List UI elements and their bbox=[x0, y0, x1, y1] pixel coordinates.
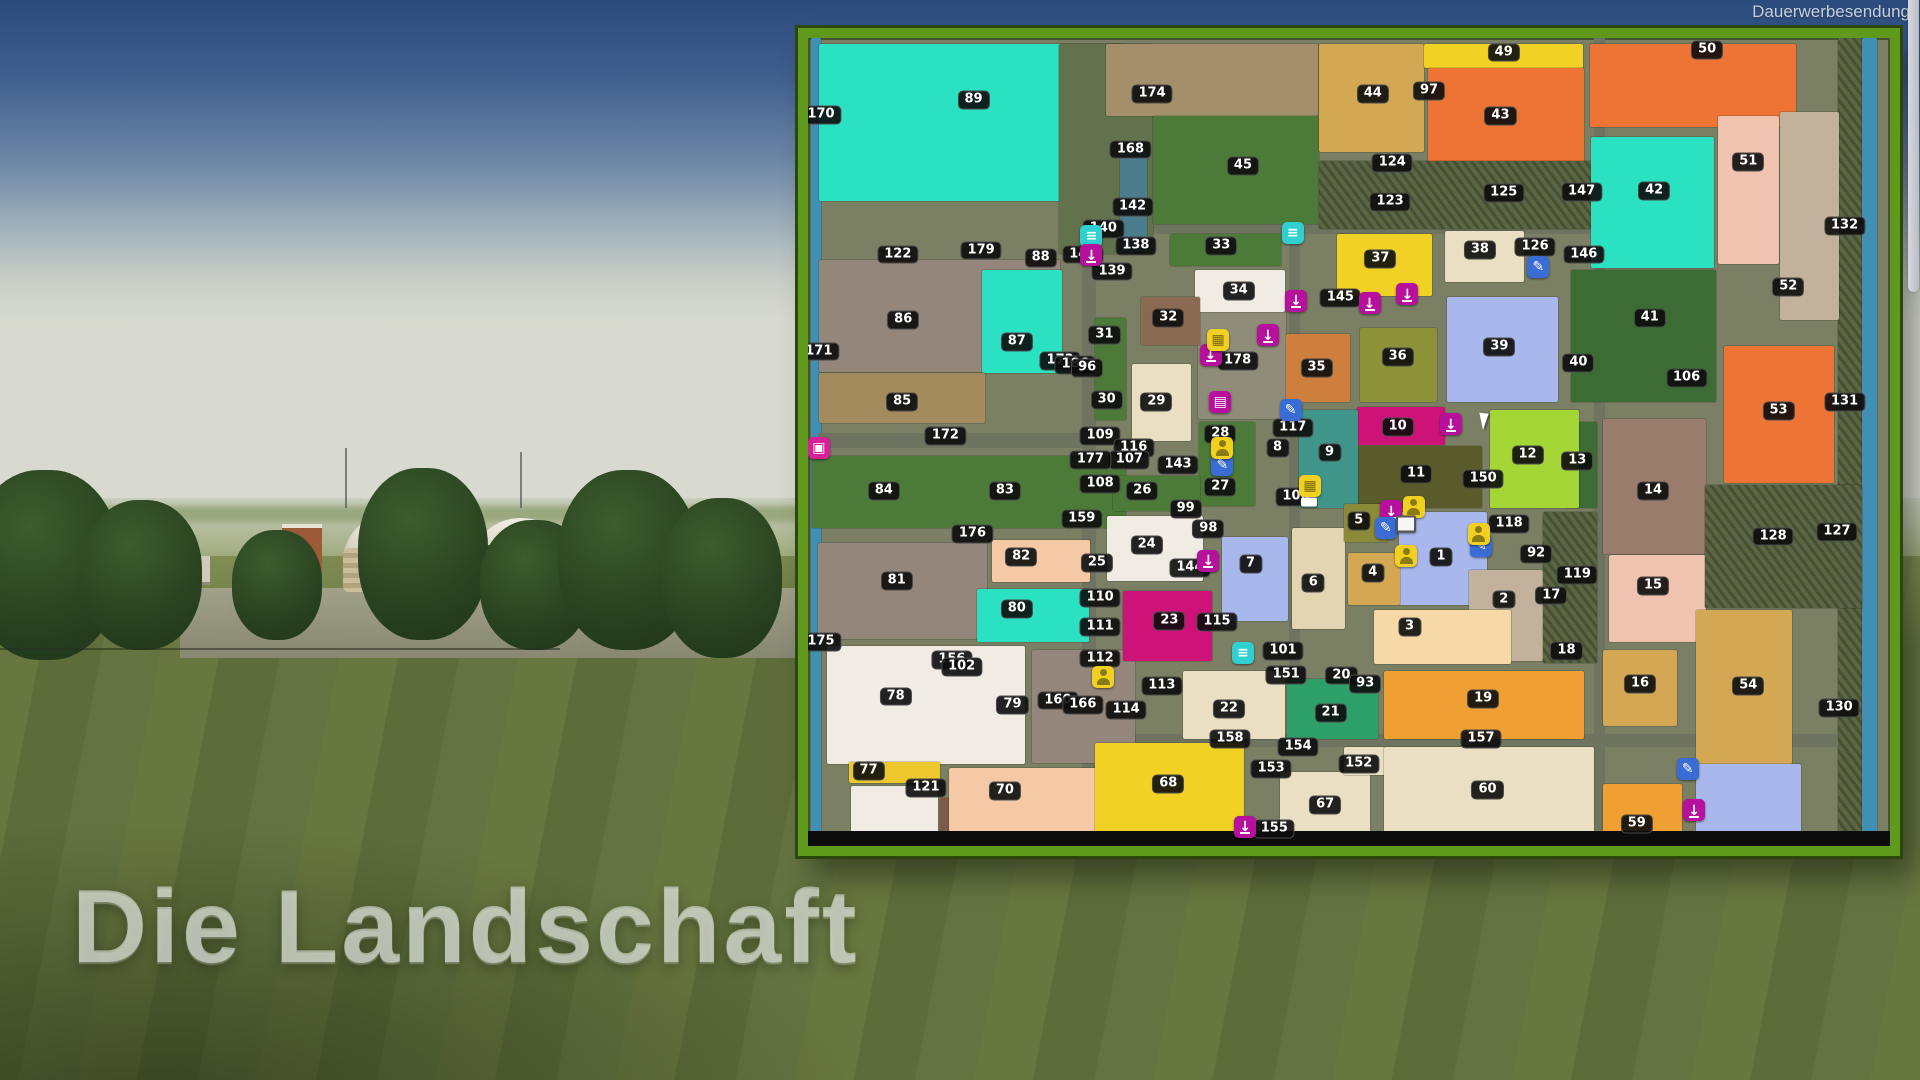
field-number-pill: 3 bbox=[1398, 618, 1421, 637]
field-number-pill: 9 bbox=[1318, 443, 1341, 462]
field-block[interactable] bbox=[1862, 38, 1877, 846]
field-number-pill: 157 bbox=[1460, 730, 1501, 749]
field-number-pill: 88 bbox=[1025, 248, 1057, 267]
field-number-pill: 78 bbox=[880, 687, 912, 706]
field-number-pill: 151 bbox=[1266, 665, 1307, 684]
field-number-pill: 86 bbox=[887, 311, 919, 330]
field-block[interactable] bbox=[1705, 485, 1862, 609]
watermark-text: Dauerwerbesendung bbox=[1752, 2, 1910, 22]
map-canvas[interactable]: 1708917416845142140141139138122179883334… bbox=[808, 38, 1890, 846]
field-number-pill: 15 bbox=[1637, 576, 1669, 595]
field-number-pill: 99 bbox=[1170, 500, 1202, 519]
sell-icon[interactable]: ↓ bbox=[1257, 324, 1279, 346]
board-icon[interactable]: ✎ bbox=[1280, 399, 1302, 421]
field-number-pill: 138 bbox=[1115, 236, 1156, 255]
field-number-pill: 36 bbox=[1382, 348, 1414, 367]
field-number-pill: 107 bbox=[1109, 450, 1150, 469]
field-number-pill: 158 bbox=[1209, 730, 1250, 749]
field-number-pill: 10 bbox=[1382, 417, 1414, 436]
field-block[interactable] bbox=[1319, 161, 1594, 230]
field-number-pill: 114 bbox=[1106, 701, 1147, 720]
field-number-pill: 31 bbox=[1088, 326, 1120, 345]
field-number-pill: 16 bbox=[1624, 675, 1656, 694]
field-number-pill: 67 bbox=[1309, 795, 1341, 814]
field-number-pill: 14 bbox=[1637, 482, 1669, 501]
prod-icon[interactable]: ▣ bbox=[808, 437, 830, 459]
field-number-pill: 97 bbox=[1413, 82, 1445, 101]
field-number-pill: 154 bbox=[1278, 737, 1319, 756]
field-number-pill: 40 bbox=[1562, 353, 1594, 372]
person-icon[interactable] bbox=[1092, 666, 1114, 688]
field-number-pill: 176 bbox=[952, 525, 993, 544]
field-number-pill: 26 bbox=[1126, 482, 1158, 501]
sell-icon-bar bbox=[1206, 360, 1216, 362]
field-number-pill: 24 bbox=[1131, 535, 1163, 554]
sell-icon-bar bbox=[1291, 306, 1301, 308]
field-number-pill: 52 bbox=[1772, 277, 1804, 296]
field-number-pill: 59 bbox=[1621, 815, 1653, 834]
sell-icon[interactable]: ↓ bbox=[1359, 292, 1381, 314]
field-number-pill: 49 bbox=[1488, 43, 1520, 62]
field-number-pill: 39 bbox=[1483, 337, 1515, 356]
field-number-pill: 117 bbox=[1272, 419, 1313, 438]
sell-icon-bar bbox=[1203, 566, 1213, 568]
net-icon[interactable]: ▤ bbox=[1209, 391, 1231, 413]
field-number-pill: 25 bbox=[1081, 554, 1113, 573]
power-pylon bbox=[520, 452, 522, 508]
field-number-pill: 150 bbox=[1463, 470, 1504, 489]
person-icon[interactable] bbox=[1468, 523, 1490, 545]
field-number-pill: 54 bbox=[1732, 677, 1764, 696]
field-number-pill: 35 bbox=[1300, 359, 1332, 378]
field-number-pill: 108 bbox=[1080, 475, 1121, 494]
board-icon[interactable]: ✎ bbox=[1527, 256, 1549, 278]
field-block[interactable] bbox=[1838, 38, 1862, 846]
tree bbox=[662, 498, 782, 658]
field-number-pill: 45 bbox=[1227, 156, 1259, 175]
field-number-pill: 81 bbox=[881, 572, 913, 591]
sell-icon-bar bbox=[1086, 261, 1096, 263]
field-number-pill: 110 bbox=[1080, 588, 1121, 607]
field-number-pill: 7 bbox=[1239, 555, 1262, 574]
sell-icon[interactable]: ↓ bbox=[1440, 413, 1462, 435]
menu-icon[interactable]: ≡ bbox=[1232, 642, 1254, 664]
sell-icon-bar bbox=[1446, 430, 1456, 432]
field-map-panel[interactable]: 1708917416845142140141139138122179883334… bbox=[798, 28, 1900, 856]
field-block[interactable] bbox=[1374, 610, 1511, 664]
field-number-pill: 84 bbox=[868, 482, 900, 501]
scrollbar-thumb[interactable] bbox=[1908, 0, 1919, 292]
field-number-pill: 5 bbox=[1347, 512, 1370, 531]
field-number-pill: 124 bbox=[1372, 154, 1413, 173]
field-number-pill: 23 bbox=[1153, 612, 1185, 631]
field-number-pill: 43 bbox=[1484, 106, 1516, 125]
field-number-pill: 118 bbox=[1489, 515, 1530, 534]
field-number-pill: 175 bbox=[808, 632, 842, 651]
field-block[interactable] bbox=[808, 831, 1890, 846]
field-number-pill: 92 bbox=[1520, 545, 1552, 564]
field-number-pill: 77 bbox=[853, 761, 885, 780]
field-number-pill: 172 bbox=[925, 427, 966, 446]
field-number-pill: 127 bbox=[1816, 522, 1857, 541]
field-number-pill: 11 bbox=[1400, 465, 1432, 484]
field-number-pill: 44 bbox=[1357, 84, 1389, 103]
shop-icon[interactable]: ▦ bbox=[1207, 329, 1229, 351]
field-block[interactable] bbox=[1718, 116, 1779, 265]
field-number-pill: 21 bbox=[1315, 703, 1347, 722]
field-number-pill: 115 bbox=[1196, 613, 1237, 632]
field-block[interactable] bbox=[1222, 537, 1288, 621]
field-number-pill: 146 bbox=[1563, 245, 1604, 264]
page-title: Die Landschaft bbox=[72, 868, 859, 987]
field-number-pill: 42 bbox=[1638, 181, 1670, 200]
person-icon[interactable] bbox=[1395, 545, 1417, 567]
field-number-pill: 93 bbox=[1349, 675, 1381, 694]
field-number-pill: 145 bbox=[1320, 289, 1361, 308]
field-number-pill: 4 bbox=[1361, 563, 1384, 582]
field-number-pill: 130 bbox=[1819, 698, 1860, 717]
field-number-pill: 22 bbox=[1213, 699, 1245, 718]
field-number-pill: 29 bbox=[1140, 392, 1172, 411]
field-number-pill: 132 bbox=[1824, 217, 1865, 236]
sell-icon[interactable]: ↓ bbox=[1285, 290, 1307, 312]
field-number-pill: 2 bbox=[1492, 590, 1515, 609]
field-number-pill: 147 bbox=[1561, 183, 1602, 202]
sell-icon-bar bbox=[1365, 309, 1375, 311]
board-icon[interactable]: ✎ bbox=[1677, 758, 1699, 780]
field-number-pill: 12 bbox=[1511, 445, 1543, 464]
field-block[interactable] bbox=[1609, 555, 1706, 641]
field-number-pill: 51 bbox=[1732, 152, 1764, 171]
power-pylon bbox=[345, 448, 347, 508]
tree bbox=[358, 468, 488, 640]
menu-icon[interactable]: ≡ bbox=[1282, 222, 1304, 244]
field-number-pill: 34 bbox=[1223, 281, 1255, 300]
field-number-pill: 30 bbox=[1091, 391, 1123, 410]
field-number-pill: 60 bbox=[1471, 781, 1503, 800]
person-icon[interactable] bbox=[1403, 496, 1425, 518]
field-number-pill: 128 bbox=[1753, 527, 1794, 546]
sell-icon[interactable]: ↓ bbox=[1396, 283, 1418, 305]
field-block[interactable] bbox=[818, 543, 987, 639]
field-number-pill: 8 bbox=[1266, 439, 1289, 458]
field-number-pill: 155 bbox=[1254, 820, 1295, 839]
field-number-pill: 50 bbox=[1691, 41, 1723, 60]
field-number-pill: 1 bbox=[1429, 547, 1452, 566]
field-number-pill: 168 bbox=[1110, 140, 1151, 159]
field-number-pill: 19 bbox=[1467, 689, 1499, 708]
field-number-pill: 177 bbox=[1070, 450, 1111, 469]
sell-icon[interactable]: ↓ bbox=[1683, 799, 1705, 821]
field-number-pill: 98 bbox=[1192, 520, 1224, 539]
field-number-pill: 178 bbox=[1217, 352, 1258, 371]
field-number-pill: 37 bbox=[1364, 250, 1396, 269]
field-number-pill: 89 bbox=[957, 91, 989, 110]
field-number-pill: 126 bbox=[1515, 238, 1556, 257]
sell-icon[interactable]: ↓ bbox=[1080, 244, 1102, 266]
field-number-pill: 143 bbox=[1157, 456, 1198, 475]
field-number-pill: 96 bbox=[1071, 359, 1103, 378]
field-block[interactable] bbox=[1696, 764, 1801, 833]
person-icon[interactable] bbox=[1211, 437, 1233, 459]
field-number-pill: 106 bbox=[1666, 369, 1707, 388]
field-block[interactable] bbox=[1106, 44, 1318, 117]
fence-line bbox=[0, 648, 560, 650]
field-number-pill: 87 bbox=[1001, 332, 1033, 351]
field-number-pill: 6 bbox=[1302, 574, 1325, 593]
field-number-pill: 101 bbox=[1262, 642, 1303, 661]
field-number-pill: 171 bbox=[808, 342, 839, 361]
field-number-pill: 159 bbox=[1061, 509, 1102, 528]
field-number-pill: 18 bbox=[1550, 642, 1582, 661]
field-number-pill: 13 bbox=[1561, 451, 1593, 470]
board-icon[interactable]: ✎ bbox=[1375, 517, 1397, 539]
field-number-pill: 17 bbox=[1535, 586, 1567, 605]
field-number-pill: 27 bbox=[1204, 478, 1236, 497]
sell-icon-bar bbox=[1689, 816, 1699, 818]
field-block[interactable] bbox=[1591, 137, 1713, 269]
tree bbox=[232, 530, 322, 640]
sell-icon-bar bbox=[1240, 832, 1250, 834]
field-number-pill: 121 bbox=[905, 778, 946, 797]
field-number-pill: 142 bbox=[1112, 197, 1153, 216]
field-number-pill: 153 bbox=[1251, 760, 1292, 779]
field-number-pill: 166 bbox=[1062, 696, 1103, 715]
sell-icon-bar bbox=[1402, 300, 1412, 302]
field-number-pill: 38 bbox=[1464, 240, 1496, 259]
field-number-pill: 152 bbox=[1338, 755, 1379, 774]
field-number-pill: 174 bbox=[1131, 84, 1172, 103]
field-number-pill: 53 bbox=[1763, 402, 1795, 421]
field-number-pill: 80 bbox=[1001, 600, 1033, 619]
sell-icon[interactable]: ↓ bbox=[1197, 550, 1219, 572]
field-number-pill: 123 bbox=[1370, 193, 1411, 212]
sell-icon-bar bbox=[1263, 341, 1273, 343]
field-number-pill: 131 bbox=[1824, 393, 1865, 412]
field-number-pill: 122 bbox=[877, 245, 918, 264]
field-number-pill: 125 bbox=[1483, 184, 1524, 203]
field-number-pill: 82 bbox=[1005, 547, 1037, 566]
field-number-pill: 79 bbox=[996, 696, 1028, 715]
truck-icon[interactable] bbox=[1301, 497, 1317, 506]
field-number-pill: 68 bbox=[1152, 774, 1184, 793]
field-number-pill: 111 bbox=[1080, 618, 1121, 637]
field-number-pill: 102 bbox=[941, 658, 982, 677]
shop-icon[interactable]: ▦ bbox=[1299, 475, 1321, 497]
field-number-pill: 179 bbox=[961, 241, 1002, 260]
sell-icon[interactable]: ↓ bbox=[1234, 816, 1256, 838]
field-number-pill: 83 bbox=[989, 482, 1021, 501]
field-block[interactable] bbox=[977, 589, 1090, 642]
field-number-pill: 119 bbox=[1557, 566, 1598, 585]
field-number-pill: 70 bbox=[989, 782, 1021, 801]
tree bbox=[82, 500, 202, 650]
field-number-pill: 41 bbox=[1634, 308, 1666, 327]
field-number-pill: 113 bbox=[1141, 677, 1182, 696]
field-number-pill: 170 bbox=[808, 105, 842, 124]
field-number-pill: 32 bbox=[1152, 309, 1184, 328]
field-number-pill: 85 bbox=[886, 393, 918, 412]
field-number-pill: 33 bbox=[1205, 236, 1237, 255]
monitor-icon[interactable] bbox=[1396, 516, 1416, 533]
